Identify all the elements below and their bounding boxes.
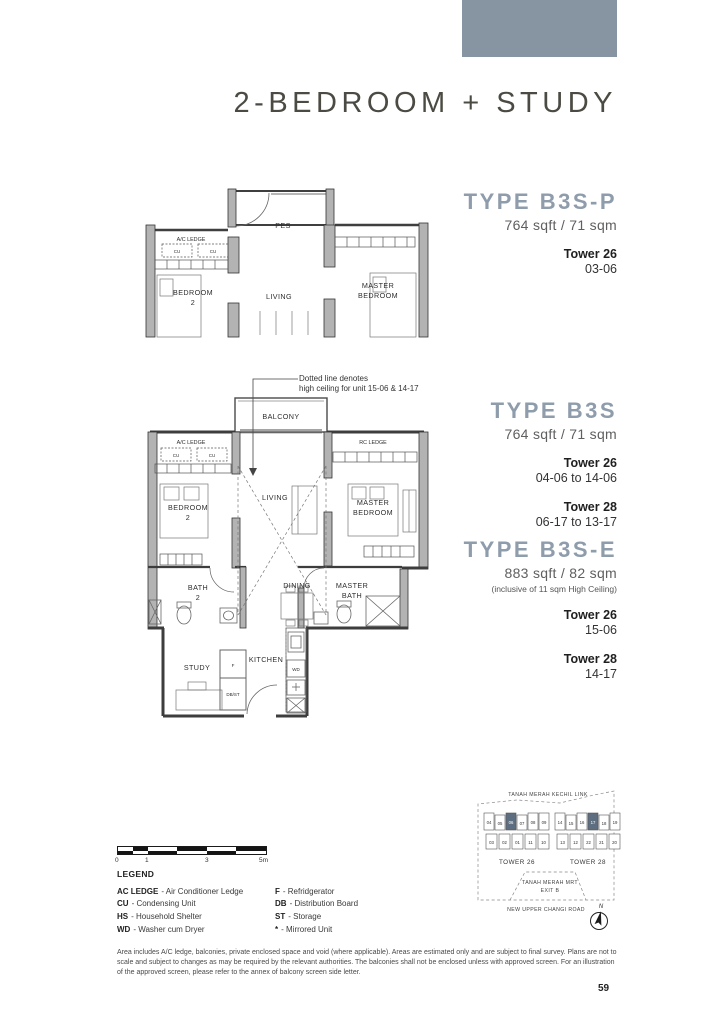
legend-right-column: F- Refridgerator DB- Distribution Board … (275, 883, 358, 934)
room-label-study: STUDY (184, 663, 210, 672)
tower-26-label: TOWER 26 (499, 859, 535, 866)
type-name: TYPE B3S (491, 400, 617, 422)
tower-entry: Tower 26 15-06 (464, 608, 617, 637)
entry-door-arc (247, 685, 277, 714)
svg-text:03: 03 (489, 840, 494, 845)
svg-text:EXIT B: EXIT B (541, 888, 560, 894)
svg-text:20: 20 (612, 840, 617, 845)
svg-text:04: 04 (487, 820, 492, 825)
svg-text:BEDROOM: BEDROOM (353, 508, 393, 517)
highlighted-unit-06: 06 (509, 820, 514, 825)
room-label-pes: PES (275, 221, 291, 230)
room-label-bedroom2: BEDROOM (168, 503, 208, 512)
type-area: 764 sqft / 71 sqm (464, 217, 617, 233)
room-label-ac-ledge: A/C LEDGE (177, 440, 206, 446)
type-name: TYPE B3S-P (464, 191, 617, 213)
disclaimer-text: Area includes A/C ledge, balconies, priv… (117, 948, 619, 978)
road-label-bottom: NEW UPPER CHANGI ROAD (507, 907, 585, 913)
room-label-ac-ledge: A/C LEDGE (177, 237, 206, 243)
highlighted-unit-17: 17 (591, 820, 596, 825)
label-dbst: DB/ST (226, 692, 240, 697)
tower-units: 15-06 (464, 623, 617, 637)
keyplan-tower-28: 14 15 16 17 18 19 13 12 22 21 20 TOWER 2… (555, 813, 620, 866)
svg-text:16: 16 (580, 820, 585, 825)
tower-name: Tower 26 (464, 608, 617, 622)
svg-text:22: 22 (586, 840, 591, 845)
type-info-b3s-e: TYPE B3S-E 883 sqft / 82 sqm (inclusive … (464, 539, 617, 681)
svg-text:11: 11 (528, 840, 533, 845)
cu-label: CU (210, 249, 217, 254)
header-accent-block (462, 0, 617, 57)
svg-text:18: 18 (602, 821, 607, 826)
tower-name: Tower 26 (464, 247, 617, 261)
svg-text:BEDROOM: BEDROOM (358, 291, 398, 300)
room-label-balcony: BALCONY (262, 412, 299, 421)
cu-label: CU (174, 249, 181, 254)
tower-entry: Tower 28 06-17 to 13-17 (491, 500, 617, 529)
tower-name: Tower 26 (491, 456, 617, 470)
floor-plan-type-b3s-p: A/C LEDGE CU CU PES BEDROOM 2 LIVING MAS… (140, 183, 430, 338)
svg-text:13: 13 (560, 840, 565, 845)
page-number: 59 (598, 983, 609, 994)
key-plan: TANAH MERAH KECHIL LINK TANAH MERAH MRT … (462, 782, 712, 942)
room-label-dining: DINING (283, 581, 311, 590)
svg-text:2: 2 (186, 513, 190, 522)
tower-units: 04-06 to 14-06 (491, 471, 617, 485)
floor-plan-main: A/C LEDGE CU CU RC LEDGE (140, 372, 432, 748)
mrt-label: TANAH MERAH MRT (522, 880, 578, 886)
north-arrow-icon: N (591, 904, 608, 930)
svg-text:01: 01 (515, 840, 520, 845)
pes-door-arc (236, 193, 269, 226)
annotation-leader-line (253, 379, 298, 468)
svg-text:10: 10 (541, 840, 546, 845)
svg-text:05: 05 (498, 821, 503, 826)
legend-title: LEGEND (117, 869, 358, 879)
bath2-fixtures (149, 600, 237, 624)
legend-left-column: AC LEDGE- Air Conditioner Ledge CU- Cond… (117, 883, 275, 934)
legend: LEGEND AC LEDGE- Air Conditioner Ledge C… (117, 869, 358, 934)
scale-label-5m: 5m (259, 857, 268, 864)
tower-28-label: TOWER 28 (570, 859, 606, 866)
page-title: 2-BEDROOM + STUDY (0, 87, 617, 120)
room-label-master-bedroom: MASTER (362, 281, 394, 290)
tower-name: Tower 28 (491, 500, 617, 514)
label-wd: WD (292, 667, 300, 672)
cu-label: CU (173, 453, 180, 458)
type-name: TYPE B3S-E (464, 539, 617, 561)
scale-bar (117, 846, 267, 855)
type-info-b3s-p: TYPE B3S-P 764 sqft / 71 sqm Tower 26 03… (464, 191, 617, 276)
mrt-boundary (510, 872, 586, 900)
room-label-kitchen: KITCHEN (249, 655, 283, 664)
tower-units: 06-17 to 13-17 (491, 515, 617, 529)
master-bath-fixtures (314, 596, 400, 626)
svg-text:21: 21 (599, 840, 604, 845)
scale-label-0: 0 (115, 857, 119, 864)
tower-entry: Tower 28 14-17 (464, 652, 617, 681)
north-label: N (599, 904, 604, 910)
label-fridge: F (232, 663, 235, 668)
svg-text:2: 2 (191, 298, 195, 307)
scale-label-1: 1 (145, 857, 149, 864)
svg-text:14: 14 (558, 820, 563, 825)
tower-name: Tower 28 (464, 652, 617, 666)
type-area: 764 sqft / 71 sqm (491, 426, 617, 442)
keyplan-tower-26: 04 05 06 07 08 09 03 02 01 11 10 TOWER 2… (484, 813, 549, 866)
type-area: 883 sqft / 82 sqm (464, 565, 617, 581)
room-label-rc-ledge: RC LEDGE (359, 440, 387, 446)
type-note: (inclusive of 11 sqm High Ceiling) (464, 584, 617, 594)
pes-walls (232, 191, 330, 225)
road-label-top: TANAH MERAH KECHIL LINK (508, 792, 588, 798)
svg-text:2: 2 (196, 593, 200, 602)
svg-text:19: 19 (613, 820, 618, 825)
tower-units: 14-17 (464, 667, 617, 681)
tower-entry: Tower 26 04-06 to 14-06 (491, 456, 617, 485)
tower-units: 03-06 (464, 262, 617, 276)
svg-text:12: 12 (573, 840, 578, 845)
room-label-bath2: BATH (188, 583, 208, 592)
svg-text:BATH: BATH (342, 591, 362, 600)
scale-label-3: 3 (205, 857, 209, 864)
room-label-master-bath: MASTER (336, 581, 368, 590)
cu-label: CU (209, 453, 216, 458)
svg-text:15: 15 (569, 821, 574, 826)
svg-text:09: 09 (542, 820, 547, 825)
svg-text:02: 02 (502, 840, 507, 845)
brochure-page: 2-BEDROOM + STUDY TYPE B3S-P 764 sqft / … (0, 0, 724, 1024)
svg-text:07: 07 (520, 821, 525, 826)
tower-entry: Tower 26 03-06 (464, 247, 617, 276)
svg-text:08: 08 (531, 820, 536, 825)
room-label-bedroom2: BEDROOM (173, 288, 213, 297)
room-label-master-bedroom: MASTER (357, 498, 389, 507)
type-info-b3s: TYPE B3S 764 sqft / 71 sqm Tower 26 04-0… (491, 400, 617, 529)
room-label-living: LIVING (266, 292, 292, 301)
room-label-living: LIVING (262, 493, 288, 502)
